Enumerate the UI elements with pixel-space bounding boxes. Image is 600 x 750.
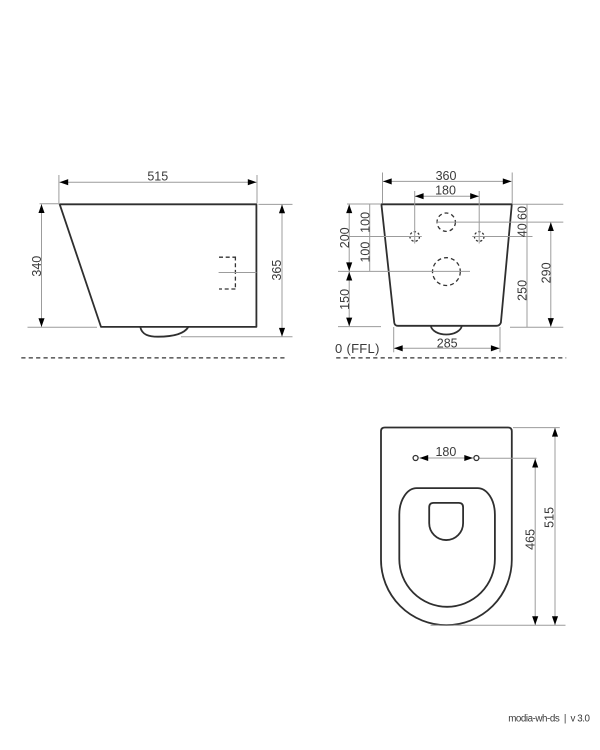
svg-text:40: 40: [516, 223, 530, 237]
svg-text:180: 180: [435, 184, 456, 198]
svg-text:180: 180: [435, 445, 456, 459]
svg-text:515: 515: [147, 170, 168, 184]
svg-text:285: 285: [437, 336, 458, 350]
svg-text:100: 100: [358, 242, 372, 263]
svg-text:365: 365: [270, 260, 284, 281]
svg-text:250: 250: [516, 280, 530, 301]
svg-text:60: 60: [516, 206, 530, 220]
svg-text:340: 340: [30, 256, 44, 277]
svg-text:515: 515: [542, 507, 556, 528]
svg-text:360: 360: [436, 169, 457, 183]
svg-text:465: 465: [523, 529, 537, 550]
svg-text:modia-wh-ds | v 3.0: modia-wh-ds | v 3.0: [508, 714, 590, 725]
svg-text:100: 100: [358, 212, 372, 233]
svg-text:200: 200: [338, 227, 352, 248]
svg-text:0 (FFL): 0 (FFL): [335, 341, 380, 356]
svg-text:150: 150: [338, 289, 352, 310]
svg-text:290: 290: [539, 262, 553, 283]
